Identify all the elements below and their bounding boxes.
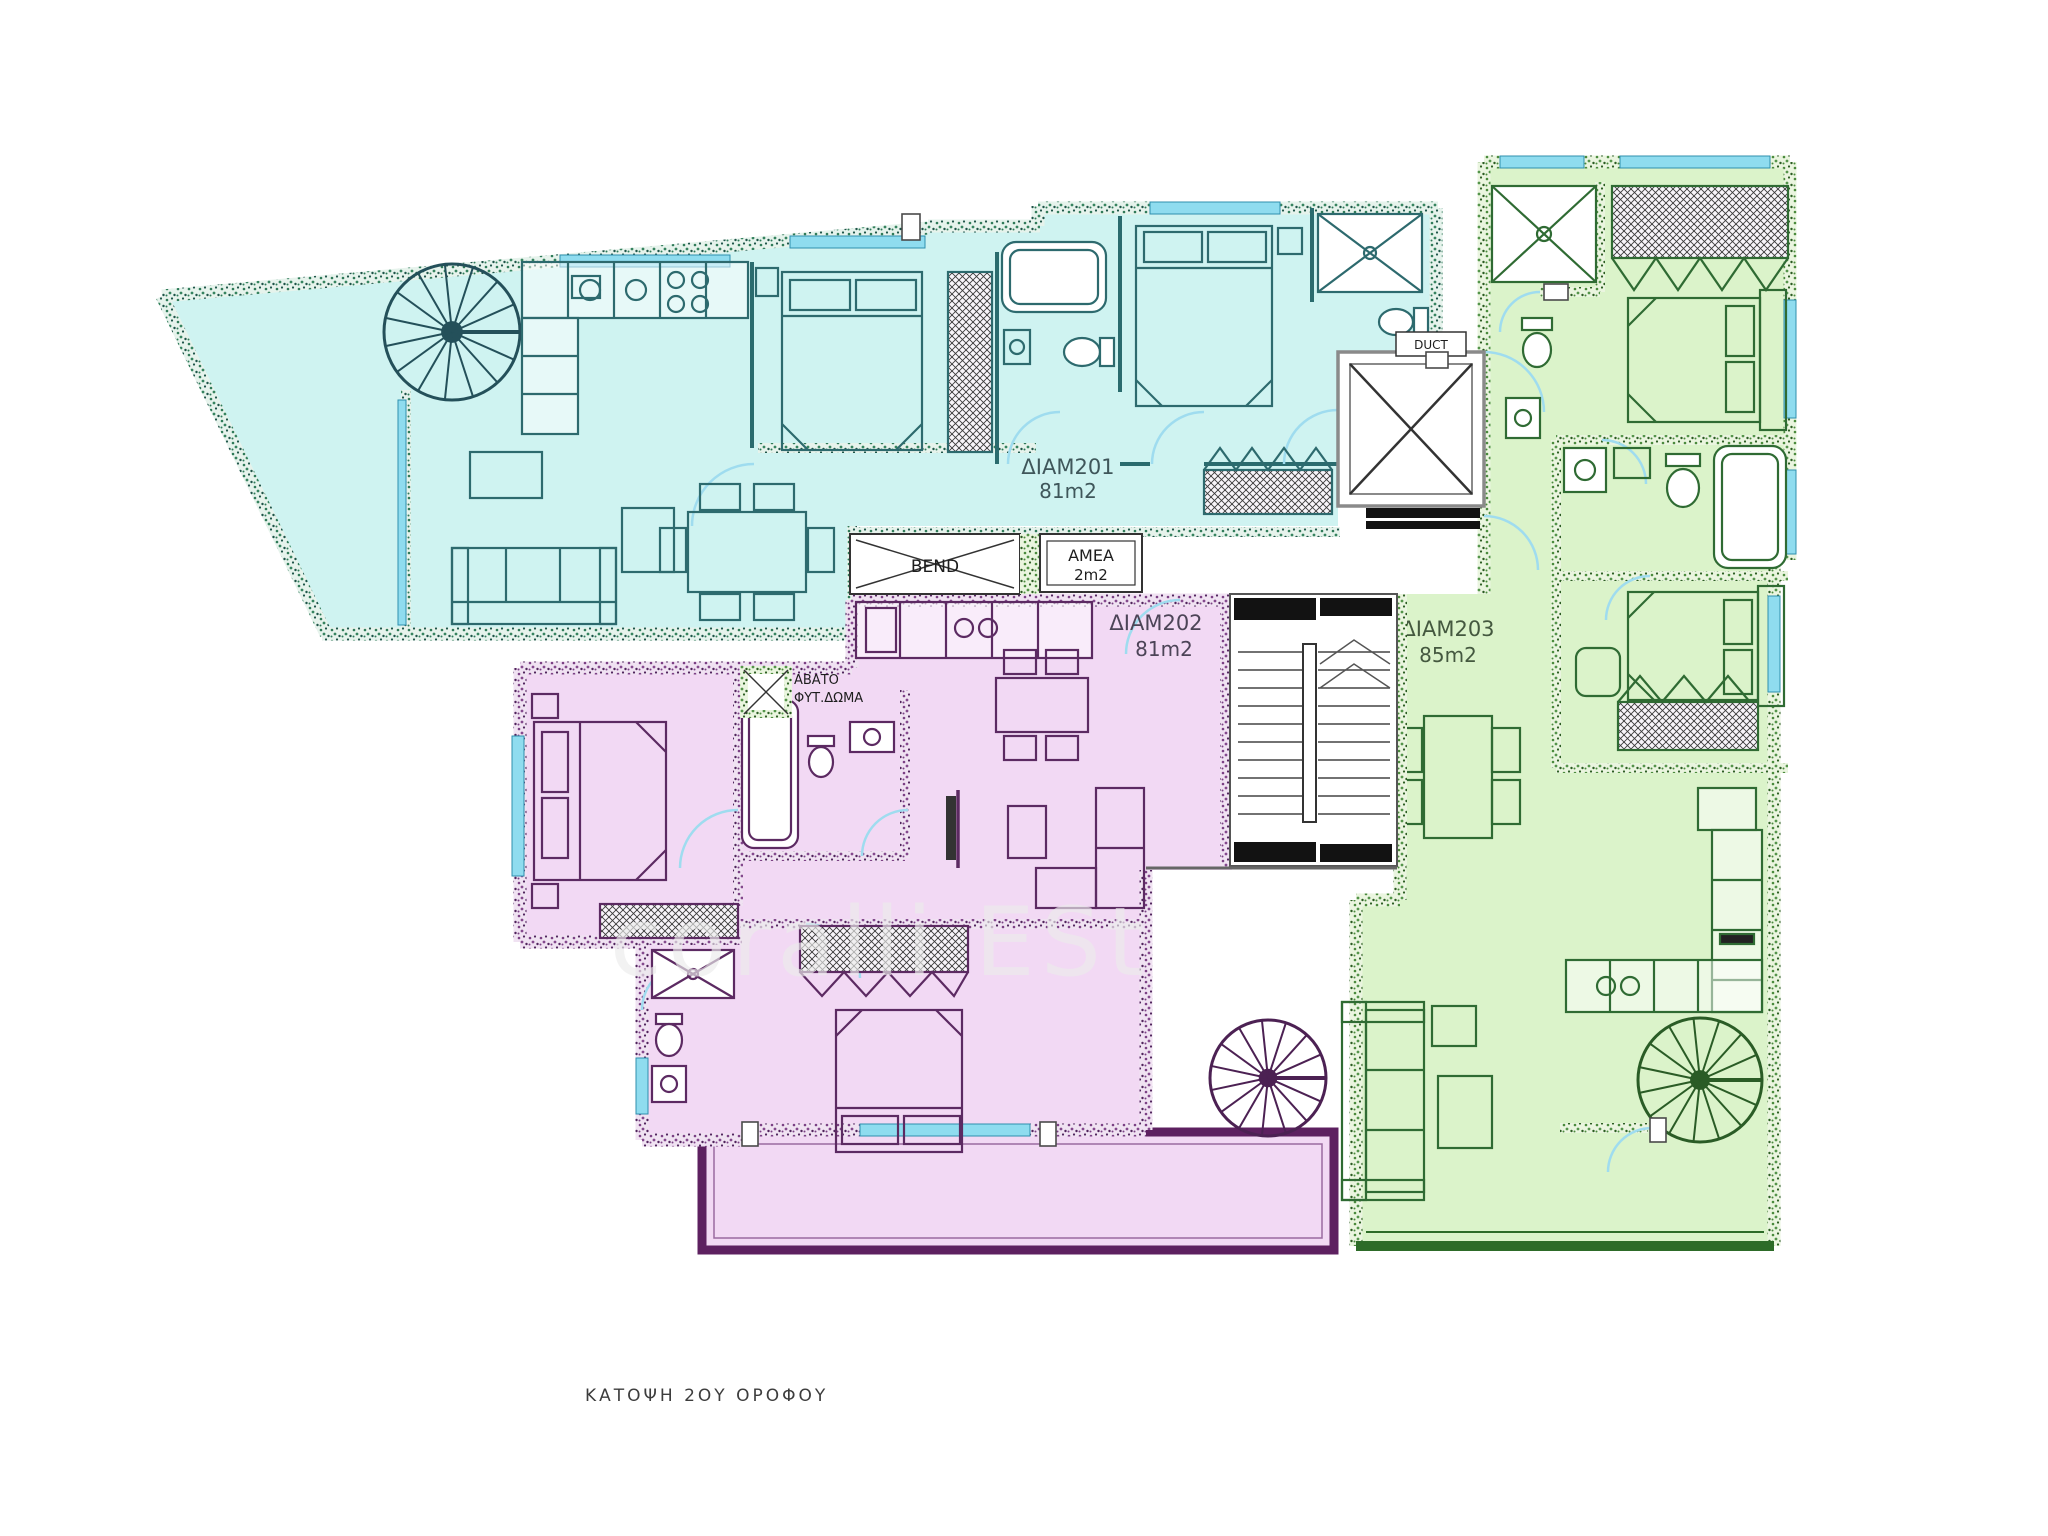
- shower-203: [1492, 186, 1596, 282]
- apartment-203-name: ΔΙΑΜ203: [1401, 617, 1494, 641]
- duct-label: DUCT: [1414, 338, 1448, 352]
- elevator-shaft: [1338, 352, 1484, 529]
- bend-label: BEND: [911, 557, 959, 577]
- terrace-202: [702, 1132, 1334, 1250]
- lightwell-label-2: ΦΥΤ.ΔΩΜΑ: [794, 691, 863, 706]
- page-title: ΚΑΤΟΨΗ 2ΟΥ ΟΡΟΦΟΥ: [585, 1386, 828, 1406]
- wc-202-b: [808, 736, 834, 777]
- apartment-202-area: 81m2: [1135, 637, 1193, 661]
- shower-201: [1318, 214, 1422, 292]
- wardrobe-201: [948, 272, 992, 452]
- amea-label: AMEA: [1068, 546, 1114, 565]
- floor-plan-page: ΔΙΑΜ201 81m2: [0, 0, 2048, 1536]
- wc-202-a: [656, 1014, 682, 1056]
- basin-202-b: [850, 722, 894, 752]
- bend-amea-wall: [1020, 534, 1040, 594]
- bathtub-202: [742, 700, 798, 848]
- bend-shaft: BEND: [850, 534, 1040, 594]
- stair-rail: [1303, 644, 1316, 822]
- apartment-201-area: 81m2: [1039, 479, 1097, 503]
- wc-203: [1522, 318, 1552, 367]
- tv-202: [946, 796, 956, 860]
- amea-storage: AMEA 2m2: [1040, 534, 1142, 592]
- apartment-202-name: ΔΙΑΜ202: [1109, 611, 1202, 635]
- floor-plan: ΔΙΑΜ201 81m2: [0, 0, 2048, 1536]
- amea-area: 2m2: [1074, 566, 1108, 584]
- lightwell-label-1: ΑΒΑΤΟ: [794, 673, 839, 688]
- apartment-203-area: 85m2: [1419, 643, 1477, 667]
- basin-202-a: [652, 1066, 686, 1102]
- apartment-201-name: ΔΙΑΜ201: [1021, 455, 1114, 479]
- watermark: coralli ESt: [610, 888, 1151, 998]
- basin-203: [1506, 398, 1540, 438]
